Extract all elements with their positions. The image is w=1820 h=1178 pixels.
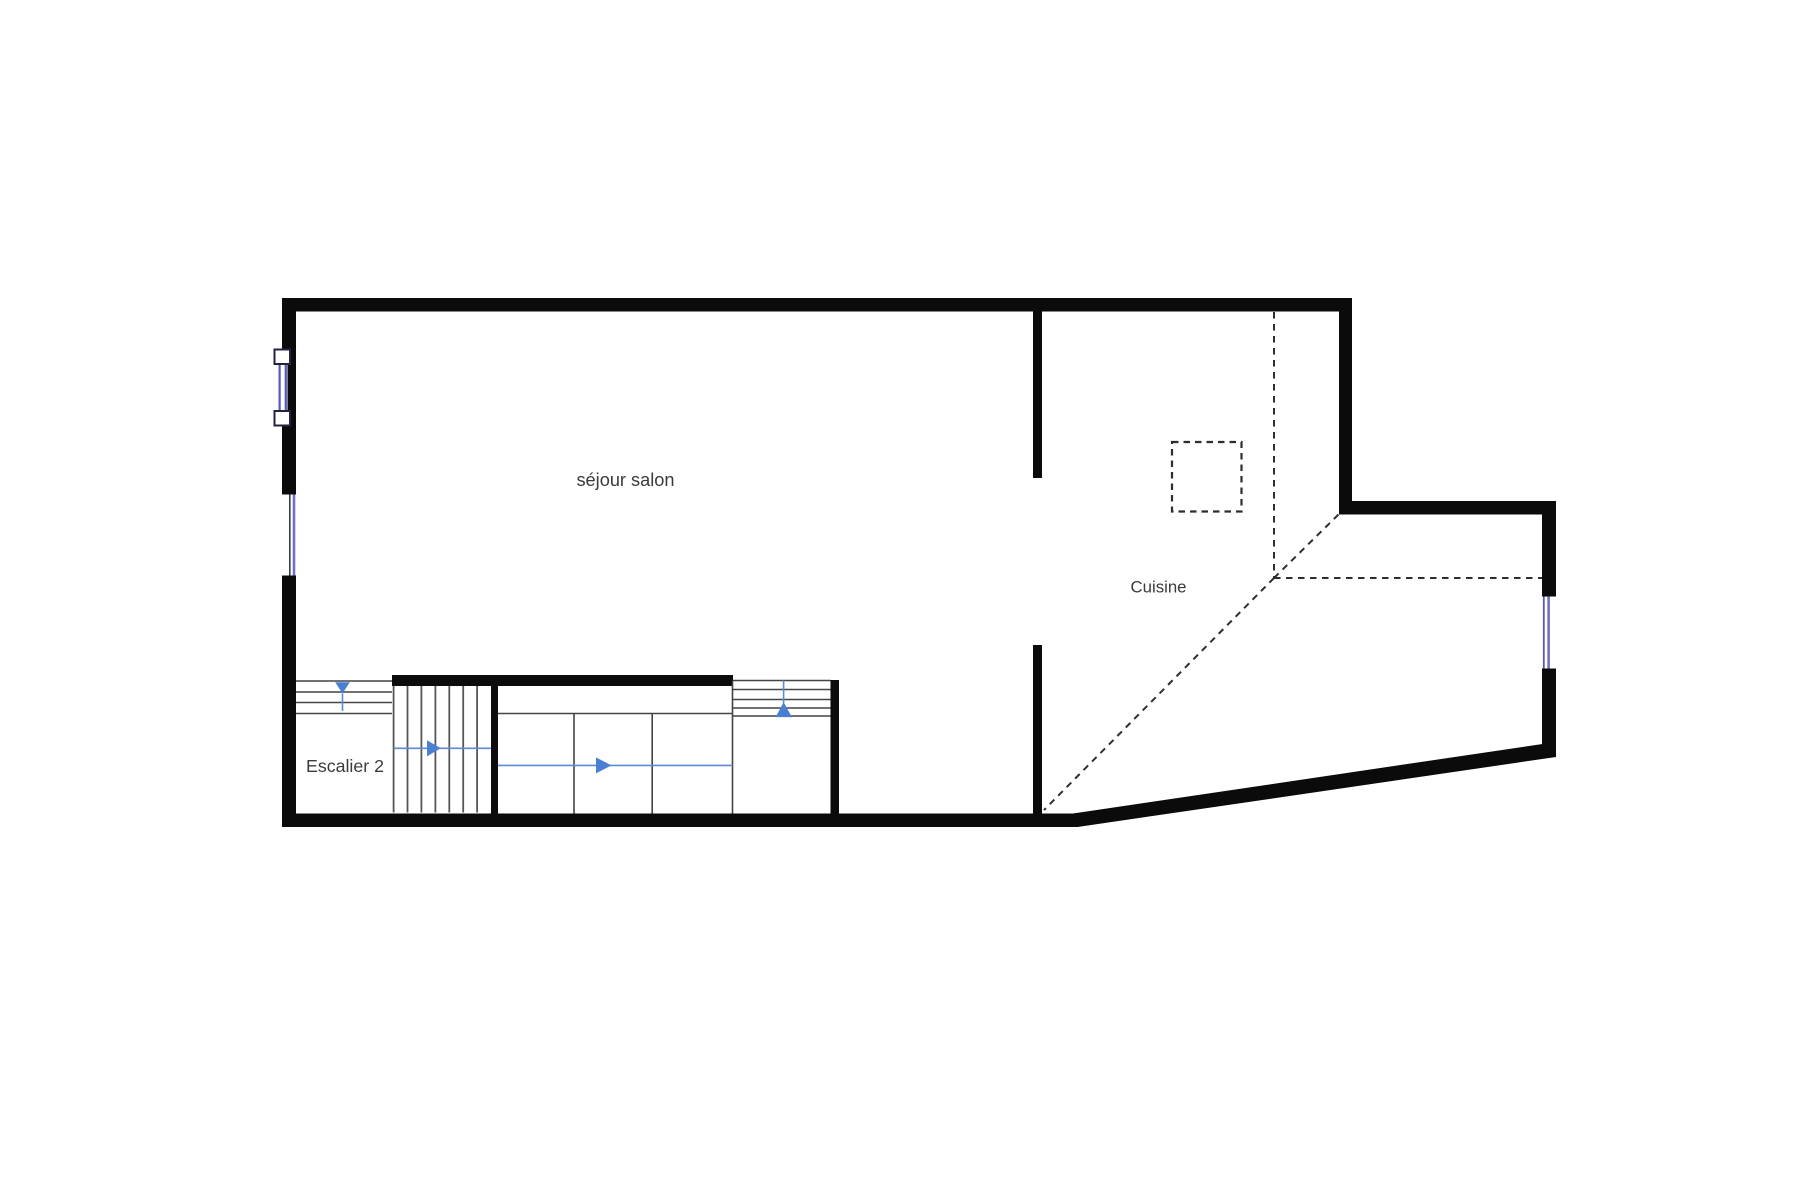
svg-text:Cuisine: Cuisine <box>1131 578 1187 597</box>
svg-text:séjour salon: séjour salon <box>576 470 674 490</box>
svg-text:Escalier 2: Escalier 2 <box>306 756 384 776</box>
